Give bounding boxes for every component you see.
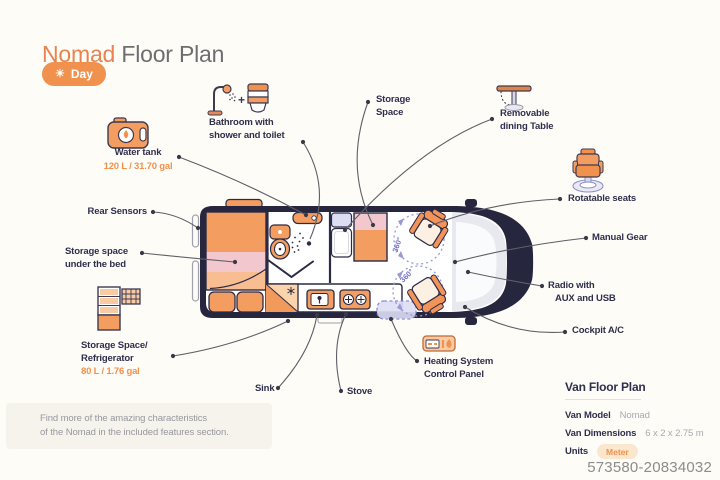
callout-dining-table: Removable dining Table [500, 108, 553, 133]
spec-panel-rule [565, 399, 641, 400]
shower-and-toilet-icon: + [204, 80, 270, 116]
callout-water-tank: Water tank 120 L / 31.70 gal [93, 147, 183, 173]
sink-unit [307, 290, 334, 309]
stove-unit [340, 290, 370, 309]
bed [206, 212, 266, 290]
callout-rotatable-seats: Rotatable seats [568, 193, 636, 206]
dinette [332, 213, 352, 257]
spec-panel-title: Van Floor Plan [565, 380, 717, 394]
page: 360° 360° [0, 0, 720, 480]
callout-stove: Stove [347, 386, 372, 399]
heating-zone [377, 301, 416, 319]
callout-sink: Sink [255, 383, 274, 396]
watermark-id: 573580-20834032 [587, 459, 712, 476]
units-badge[interactable]: Meter [597, 444, 638, 459]
van-model-value: Nomad [620, 410, 650, 421]
refrigerator-icon [95, 286, 143, 332]
callout-radio: Radio with AUX and USB [548, 280, 616, 305]
spec-panel: Van Floor Plan Van Model Nomad Van Dimen… [565, 380, 717, 463]
van-dimensions-value: 6 x 2 x 2.75 m [645, 428, 703, 439]
callout-bathroom: Bathroom with shower and toilet [209, 117, 285, 142]
rotatable-seat-icon [569, 147, 607, 195]
callout-rear-sensors: Rear Sensors [57, 206, 147, 219]
footer-note-line1: Find more of the amazing characteristics [40, 412, 272, 426]
callout-cockpit-ac: Cockpit A/C [572, 325, 624, 338]
day-mode-label: Day [71, 67, 93, 81]
refrigerator-unit [266, 284, 298, 312]
footer-note: Find more of the amazing characteristics… [6, 403, 272, 449]
callout-refrigerator: Storage Space/ Refrigerator 80 L / 1.76 … [81, 340, 148, 378]
footer-note-line2: of the Nomad in the included features se… [40, 426, 272, 440]
spec-row-dimensions: Van Dimensions 6 x 2 x 2.75 m [565, 427, 717, 440]
water-tank-capacity: 120 L / 31.70 gal [93, 161, 183, 173]
page-title-rest: Floor Plan [121, 41, 224, 67]
svg-text:+: + [238, 93, 245, 107]
callout-under-bed: Storage space under the bed [65, 246, 128, 271]
callout-manual-gear: Manual Gear [592, 232, 647, 245]
toilet [270, 225, 290, 259]
spec-row-units: Units Meter [565, 445, 717, 458]
spec-row-model: Van Model Nomad [565, 409, 717, 422]
callout-storage-space: Storage Space [376, 94, 410, 119]
refrigerator-capacity: 80 L / 1.76 gal [81, 366, 148, 378]
water-tank-label: Water tank [93, 147, 183, 160]
day-mode-button[interactable]: ☀ Day [42, 62, 106, 86]
heating-control-icon [422, 335, 456, 353]
callout-heating: Heating System Control Panel [424, 356, 493, 381]
sun-icon: ☀ [55, 69, 65, 80]
